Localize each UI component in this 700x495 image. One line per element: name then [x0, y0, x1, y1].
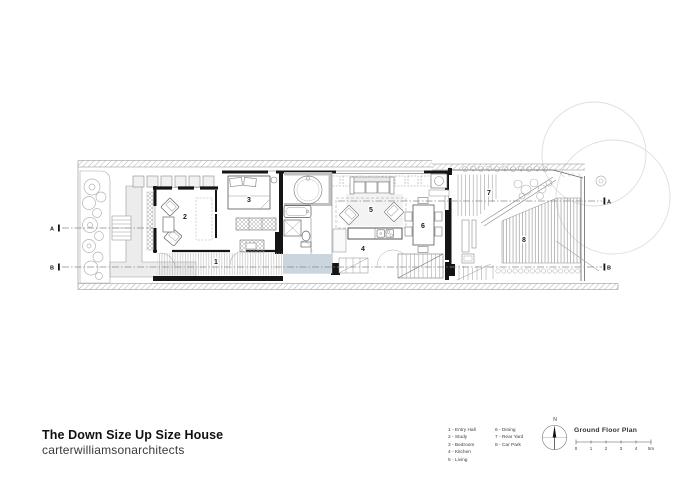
section-marker-b-left: B — [50, 266, 54, 272]
room-label-bedroom: 3 — [247, 197, 251, 204]
legend-item-dining: 6 - Dining — [495, 427, 545, 434]
title-block: The Down Size Up Size House carterwillia… — [42, 428, 223, 457]
room-label-car-park: 8 — [522, 237, 526, 244]
scale-tick-2: 2 — [605, 446, 608, 451]
legend-item-car-park: 8 - Car Park — [495, 442, 545, 449]
north-arrow: N — [541, 416, 569, 457]
north-compass-icon — [541, 424, 569, 452]
wardrobe-joinery — [236, 218, 276, 252]
legend-item-study: 2 - Study — [448, 434, 494, 441]
room-label-entry-hall: 1 — [214, 259, 218, 266]
kitchen — [333, 228, 402, 252]
legend-column-2: 6 - Dining 7 - Rear Yard 8 - Car Park — [495, 427, 545, 464]
legend-item-rear-yard: 7 - Rear Yard — [495, 434, 545, 441]
scale-tick-5m: 5m — [648, 446, 655, 451]
project-title: The Down Size Up Size House — [42, 428, 223, 442]
study-furniture — [161, 198, 212, 246]
room-label-dining: 6 — [421, 223, 425, 230]
section-marker-b-right: B — [607, 266, 611, 272]
scale-tick-1: 1 — [590, 446, 593, 451]
architect-name: carterwilliamsonarchitects — [42, 443, 223, 457]
study-wall-hatch — [147, 192, 153, 250]
entry-hall-deck — [157, 251, 283, 275]
legend-item-living: 5 - Living — [448, 457, 494, 464]
north-label: N — [541, 416, 569, 424]
room-label-study: 2 — [183, 214, 187, 221]
room-legend: 1 - Entry Hall 2 - Study 3 - Bedroom 4 -… — [448, 427, 545, 464]
drawing-sheet: A B A B 1 2 3 4 5 6 7 8 The Down Size Up… — [0, 0, 700, 495]
pond — [283, 254, 332, 273]
section-marker-a-right: A — [607, 200, 611, 206]
scale-bar: 0 1 2 3 4 5m — [572, 438, 662, 454]
section-marker-a-left: A — [50, 227, 54, 233]
legend-item-entry-hall: 1 - Entry Hall — [448, 427, 494, 434]
scale-tick-4: 4 — [635, 446, 638, 451]
bedroom-furniture — [228, 176, 277, 209]
plan-title: Ground Floor Plan — [574, 427, 637, 434]
scale-tick-3: 3 — [620, 446, 623, 451]
front-garden — [80, 171, 110, 283]
scale-tick-0: 0 — [575, 446, 578, 451]
pergola-battens — [133, 176, 214, 187]
stairs — [339, 250, 443, 278]
room-label-living: 5 — [369, 207, 373, 214]
legend-item-bedroom: 3 - Bedroom — [448, 442, 494, 449]
legend-column-1: 1 - Entry Hall 2 - Study 3 - Bedroom 4 -… — [448, 427, 494, 464]
room-label-rear-yard: 7 — [487, 190, 491, 197]
room-label-kitchen: 4 — [361, 246, 365, 253]
legend-item-kitchen: 4 - Kitchen — [448, 449, 494, 456]
floor-plan-drawing: A B A B 1 2 3 4 5 6 7 8 — [0, 0, 700, 410]
